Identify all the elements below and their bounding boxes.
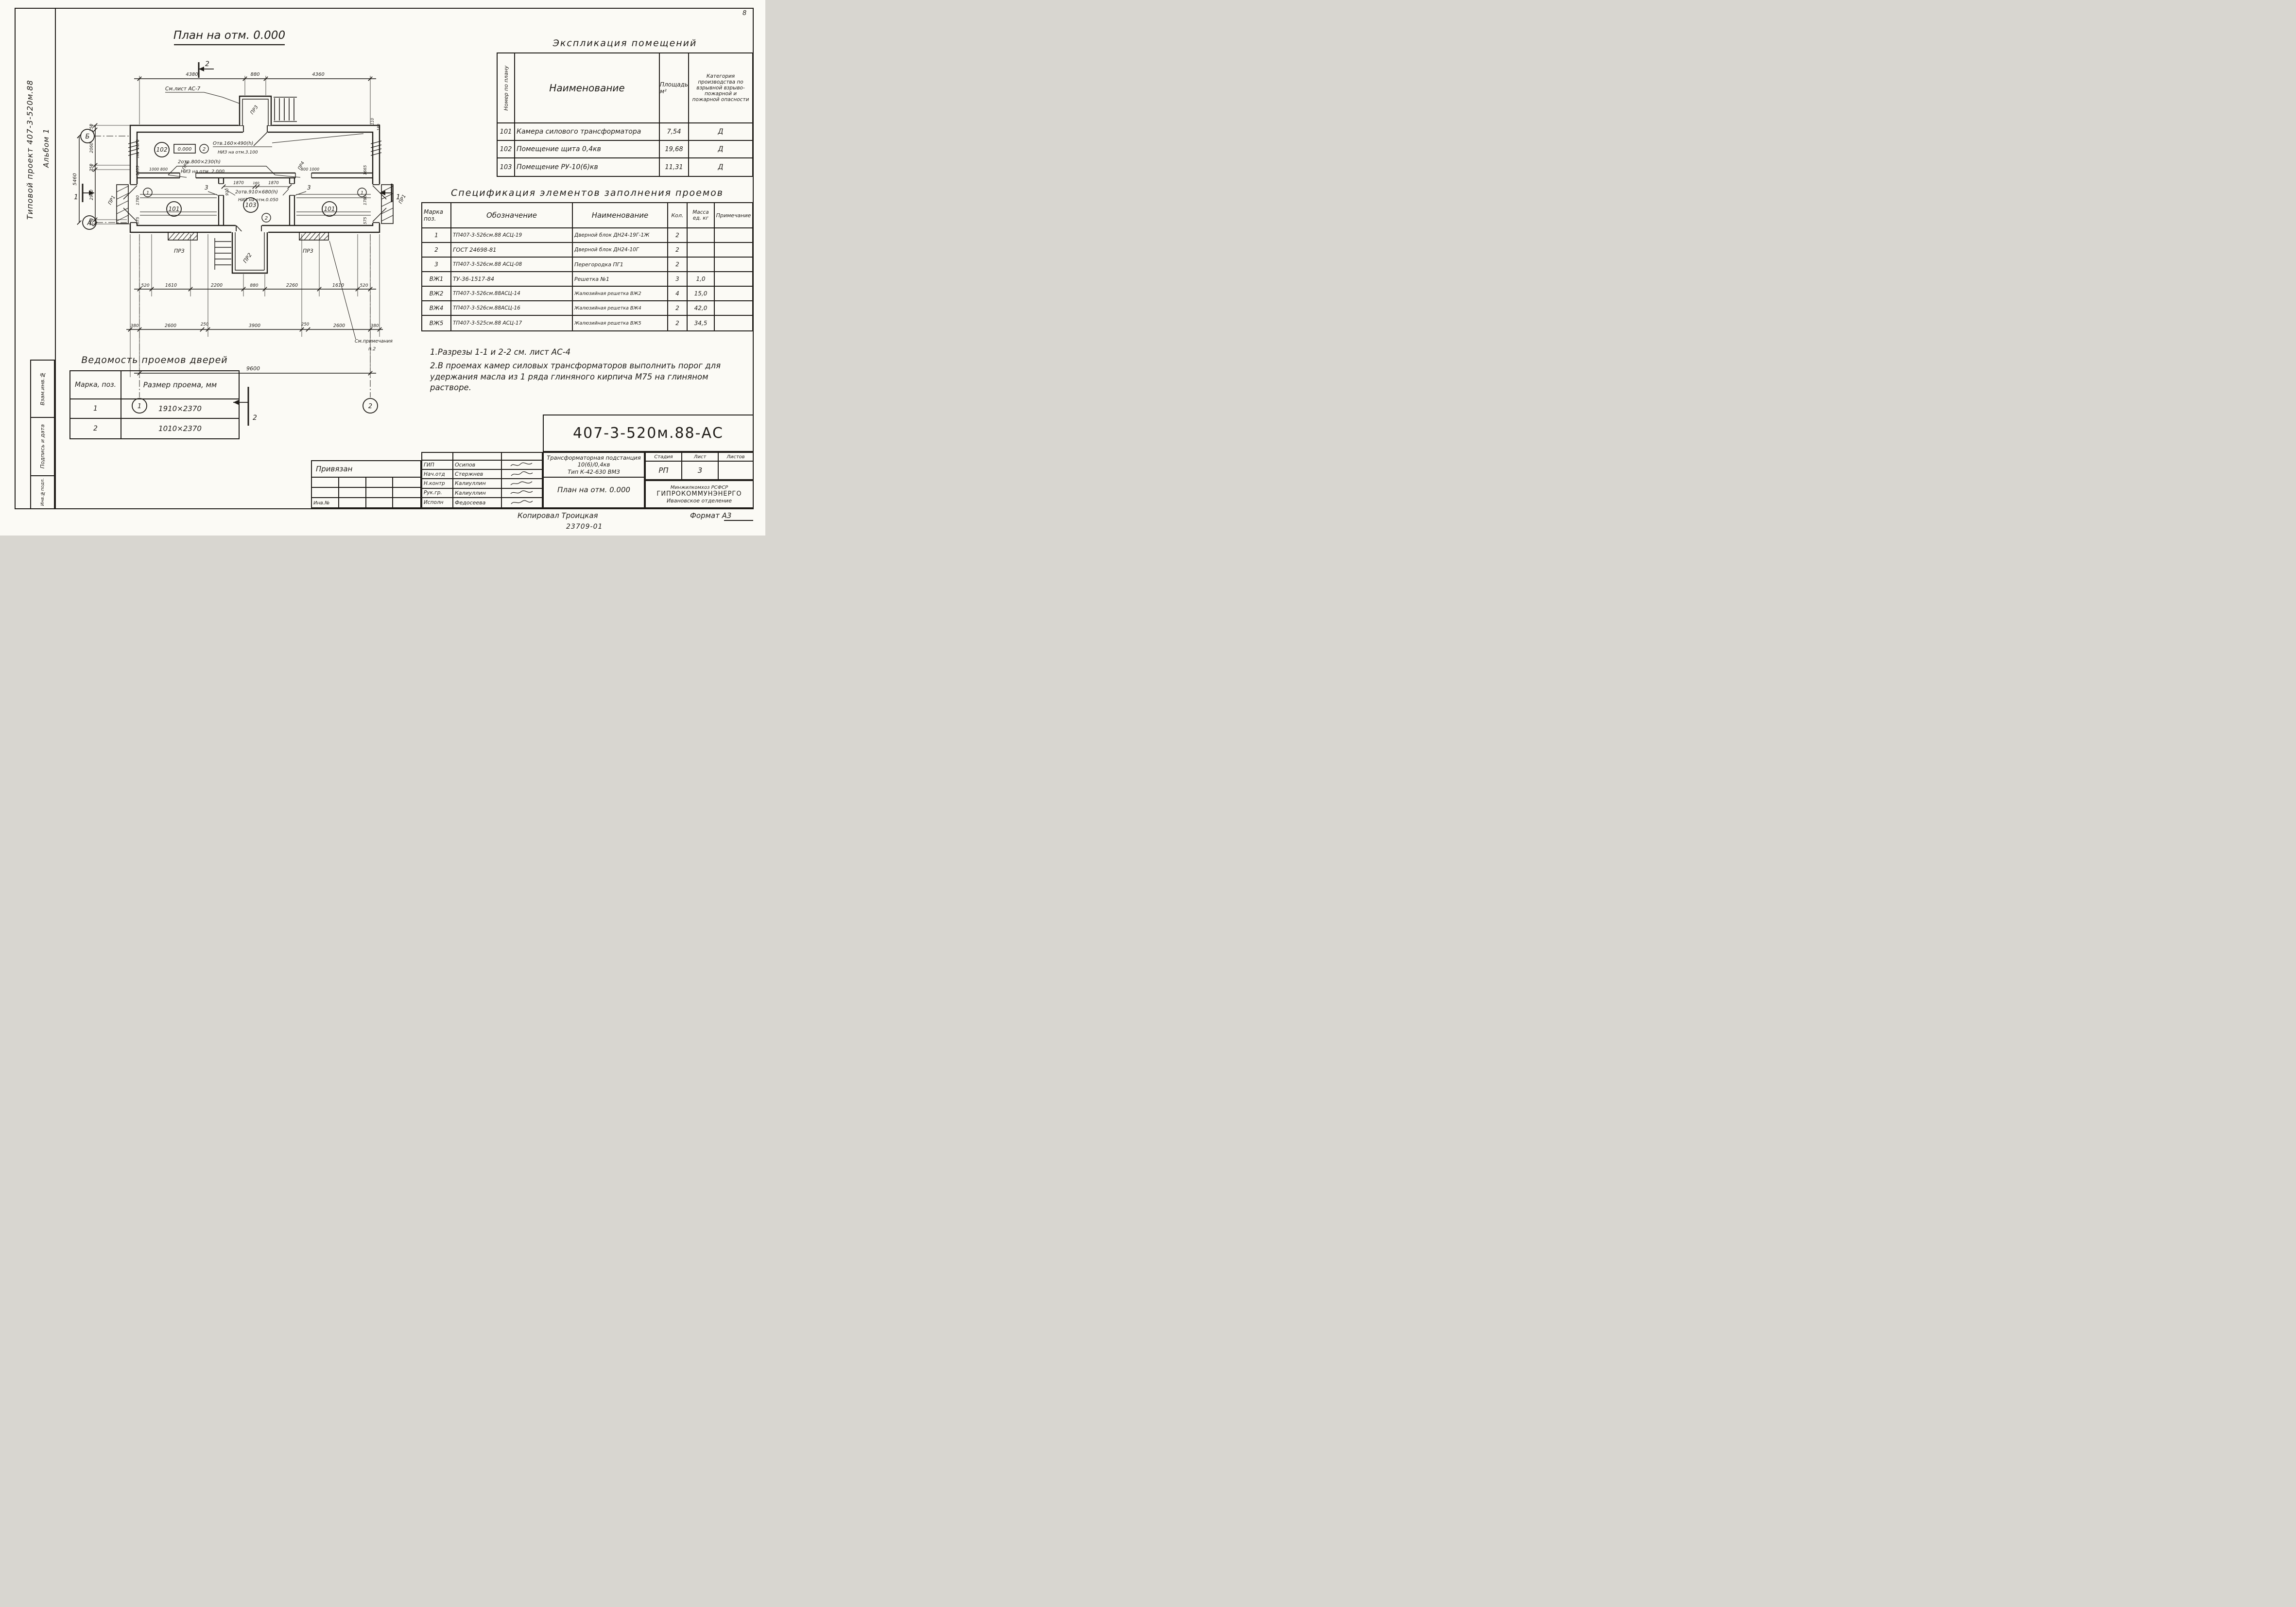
spec-cell: 2 — [668, 301, 688, 316]
doors-table: Марка, поз. Размер проема, мм 1 1910×237… — [69, 370, 240, 439]
dim-label: 180 — [377, 124, 381, 131]
dim-label: 3900 — [249, 323, 260, 328]
explication-cell: Д — [689, 141, 752, 158]
stamp-empty-cell — [393, 488, 420, 498]
stamp-object-line2: 10(6)/0,4кв — [544, 461, 644, 468]
dim-label: 1070 — [136, 139, 140, 149]
stamp-empty-cell — [502, 453, 542, 461]
spec-cell: 2 — [422, 243, 451, 258]
spec-cell: 1 — [422, 228, 451, 243]
explication-cell: Помещение РУ-10(6)кв — [515, 158, 660, 176]
dim-label: 1610 — [165, 283, 177, 288]
dim-label: 250 — [201, 322, 208, 327]
doors-cell: 1010×2370 — [121, 419, 239, 438]
frame-left — [55, 8, 56, 509]
spec-cell: 2 — [668, 316, 688, 330]
spec-cell — [688, 228, 715, 243]
frame-bottom — [15, 508, 754, 509]
stamp-stage-grid: Стадия Лист Листов РП 3 — [645, 452, 754, 480]
spec-header: Масса ед. кг — [688, 203, 715, 228]
explication-cell: Д — [689, 123, 752, 141]
spec-cell: ВЖ5 — [422, 316, 451, 330]
bottom-porch — [215, 231, 268, 274]
door-mark-1-left: 1 — [146, 190, 149, 196]
explication-cell: Помещение щита 0,4кв — [515, 141, 660, 158]
explication-cell: 7,54 — [660, 123, 689, 141]
stamp-stage-header: Лист — [682, 453, 719, 462]
spec-cell: 15,0 — [688, 287, 715, 301]
dim-label: 110 — [370, 118, 375, 125]
stamp-empty-cell — [339, 478, 366, 488]
spec-cell: ТП407-3-526см.88АСЦ-14 — [451, 287, 573, 301]
stamp-empty-cell — [422, 453, 453, 461]
dim-label: 880 — [250, 283, 258, 288]
spec-cell — [715, 243, 752, 258]
stamp-empty-cell — [393, 498, 420, 508]
paper-edge-line — [15, 8, 16, 509]
dim-label: 4360 — [312, 72, 324, 77]
stamp-empty-cell — [339, 488, 366, 498]
spec-header: Наименование — [573, 203, 668, 228]
dim-label: 800 1000 — [301, 167, 319, 172]
explication-cell: 19,68 — [660, 141, 689, 158]
stamp-object-line1: Трансформаторная подстанция — [544, 454, 644, 461]
spec-cell: Дверной блок ДН24-10Г — [573, 243, 668, 258]
spec-cell — [715, 301, 752, 316]
dim-label: 2200 — [211, 283, 223, 288]
section-2-top-label: 2 — [205, 60, 209, 68]
explication-table: Номер по плану Наименование Площадь м² К… — [497, 52, 753, 177]
explication-cell: 101 — [498, 123, 515, 141]
dim-label: 380 — [130, 324, 138, 328]
stamp-list-value: 3 — [682, 462, 719, 479]
signature-scribble — [502, 489, 542, 498]
explication-header-category: Категория производства по взрывной взрыв… — [689, 53, 752, 123]
spec-header: Марка поз. — [422, 203, 451, 228]
frame-top — [15, 8, 754, 9]
footer-rule — [724, 520, 753, 521]
dim-label: 1870 — [268, 181, 279, 186]
spec-cell — [715, 272, 752, 287]
plan-title: План на отм. 0.000 — [173, 29, 285, 42]
explication-cell: Камера силового трансформатора — [515, 123, 660, 141]
side-box-inv: Инв.№подл. — [30, 475, 55, 509]
spec-cell: Перегородка ПГ1 — [573, 258, 668, 272]
stamp-org-cell: Минжилкомхоз РСФСР ГИПРОКОММУНЭНЕРГО Ива… — [645, 480, 754, 508]
spec-cell: Дверной блок ДН24-19Г-1Ж — [573, 228, 668, 243]
dim-label: 380 — [370, 324, 379, 328]
spec-cell: ГОСТ 24698-81 — [451, 243, 573, 258]
stamp-object-cell: Трансформаторная подстанция 10(6)/0,4кв … — [543, 452, 645, 508]
note-2: 2.В проемах камер силовых трансформаторо… — [430, 361, 741, 393]
dim-label: 1780 — [136, 195, 140, 205]
explication-cell: 102 — [498, 141, 515, 158]
dim-label: 520 — [141, 283, 149, 288]
section-1-left-label: 1 — [74, 193, 78, 201]
explication-cell: 103 — [498, 158, 515, 176]
spec-cell — [715, 258, 752, 272]
axis-a: А — [87, 220, 92, 227]
dim-label: 1610 — [332, 283, 344, 288]
stamp-role: Рук.гр. — [422, 489, 453, 498]
door-mark-2-bottom: 2 — [265, 216, 268, 221]
doors-header-mark: Марка, поз. — [70, 371, 121, 399]
spec-cell: 2 — [668, 258, 688, 272]
spec-cell: 2 — [668, 243, 688, 258]
dim-label: 2600 — [333, 323, 345, 328]
stamp-name: Осипов — [453, 461, 502, 470]
side-project-text: Типовой проект 407-3-520м.88 — [25, 80, 35, 220]
signature-scribble — [502, 498, 542, 507]
dim-label: 2600 — [165, 323, 176, 328]
explication-cell: Д — [689, 158, 752, 176]
stamp-inv-label: Инв.№ — [312, 498, 339, 508]
dim-label: 1000 800 — [149, 167, 168, 172]
stamp-signature-grid: ГИП Осипов Нач.отд Стержнев Н.контр Кали… — [421, 452, 543, 508]
spec-cell: ТП407-3-526см.88 АСЦ-19 — [451, 228, 573, 243]
dim-label: 2260 — [286, 283, 298, 288]
explication-header-number: Номер по плану — [498, 53, 515, 123]
label-pr1-left: ПР1 — [107, 195, 117, 206]
partition-mark-right: 3 — [307, 184, 311, 191]
level-mark: 0.000 — [178, 147, 192, 152]
door-mark-2-top: 2 — [203, 147, 206, 152]
doors-cell: 2 — [70, 419, 121, 438]
spec-table: Марка поз. Обозначение Наименование Кол.… — [421, 202, 753, 331]
stamp-stage-header: Листов — [719, 453, 753, 462]
spec-cell — [715, 228, 752, 243]
stamp-empty-cell — [366, 488, 394, 498]
spec-cell: ТП407-3-526см.88АСЦ-16 — [451, 301, 573, 316]
stamp-stage-value: РП — [646, 462, 682, 479]
spec-cell — [688, 243, 715, 258]
stamp-org-line2: ГИПРОКОММУНЭНЕРГО — [646, 490, 753, 498]
axis-2: 2 — [368, 403, 372, 410]
door-mark-1-right: 1 — [361, 190, 363, 196]
spec-header: Кол. — [668, 203, 688, 228]
spec-header: Обозначение — [451, 203, 573, 228]
dim-label: 1870 — [233, 181, 244, 186]
spec-cell: 3 — [668, 272, 688, 287]
side-box-podpis: Подпись и дата — [30, 417, 55, 476]
spec-cell: ВЖ1 — [422, 272, 451, 287]
stamp-name: Стержнев — [453, 470, 502, 479]
dim-label: 1665 — [363, 165, 367, 175]
stamp-sheet-name: План на отм. 0.000 — [557, 485, 630, 494]
room-101-left: 101 — [169, 206, 180, 212]
footer-doc-code: 23709-01 — [566, 523, 603, 531]
dim-label: 575 — [363, 217, 367, 224]
dim-label: 2060 — [89, 142, 94, 153]
signature-scribble — [502, 461, 542, 470]
stamp-name: Федосеева — [453, 498, 502, 507]
ann-otv910-line1: 2отв.910×680(h) — [235, 190, 278, 195]
dim-label: 4380 — [186, 72, 198, 77]
spec-cell: ТП407-3-526см.88 АСЦ-08 — [451, 258, 573, 272]
explication-cell: 11,31 — [660, 158, 689, 176]
ann-otv160-line2: НИЗ на отм.3.100 — [218, 150, 258, 155]
spec-cell: ВЖ2 — [422, 287, 451, 301]
spec-cell: Жалюзийная решетка ВЖ5 — [573, 316, 668, 330]
stamp-role: Н.контр — [422, 479, 453, 488]
stamp-code-cell: 407-3-520м.88-АС — [543, 415, 754, 452]
label-pr3-bottom-left: ПР3 — [174, 248, 185, 254]
stamp-doc-code: 407-3-520м.88-АС — [573, 425, 724, 442]
spec-cell: ВЖ4 — [422, 301, 451, 316]
stamp-role: Исполн — [422, 498, 453, 507]
spec-cell: 42,0 — [688, 301, 715, 316]
stamp-role: Нач.отд — [422, 470, 453, 479]
side-box-vzam-label: Взам.инв.№ — [39, 372, 46, 405]
dim-label: 575 — [136, 217, 140, 224]
dim-label: 9600 — [246, 365, 260, 372]
dim-label: 250 — [301, 322, 309, 327]
section-2-bottom-label: 2 — [253, 414, 257, 422]
signature-scribble — [502, 479, 542, 488]
doors-cell: 1910×2370 — [121, 399, 239, 419]
footer-format: Формат А3 — [690, 511, 731, 520]
spec-cell: 3 — [422, 258, 451, 272]
spec-cell: 1,0 — [688, 272, 715, 287]
stamp-org-line1: Минжилкомхоз РСФСР — [646, 485, 753, 490]
label-pr3-bottom-right: ПР3 — [303, 248, 313, 254]
footer-copied-by: Копировал Троицкая — [518, 511, 598, 520]
dim-label: 880 — [250, 72, 259, 77]
note-1: 1.Разрезы 1-1 и 2-2 см. лист АС-4 — [430, 347, 741, 358]
axis-b: Б — [86, 133, 90, 140]
spec-cell — [688, 258, 715, 272]
stamp-empty-cell — [366, 478, 394, 488]
dim-label: 160 — [136, 152, 140, 158]
explication-title: Экспликация помещений — [497, 38, 753, 49]
doors-header-size: Размер проема, мм — [121, 371, 239, 399]
room-103: 103 — [245, 202, 257, 208]
spec-header: Примечание — [715, 203, 752, 228]
side-album-text: Альбом 1 — [42, 128, 51, 168]
stamp-name: Калиуллин — [453, 489, 502, 498]
doors-cell: 1 — [70, 399, 121, 419]
stamp-attach-block: Привязан Инв.№ — [311, 460, 421, 508]
spec-cell: 4 — [668, 287, 688, 301]
top-porch — [239, 95, 297, 125]
room-102: 102 — [156, 146, 168, 153]
spec-cell: Жалюзийная решетка ВЖ4 — [573, 301, 668, 316]
room-101-right: 101 — [324, 206, 335, 212]
see-sheet-note: См.лист АС-7 — [165, 86, 201, 92]
spec-cell: ТП407-3-525см.88 АСЦ-17 — [451, 316, 573, 330]
drawing-sheet: 8 Типовой проект 407-3-520м.88 Альбом 1 … — [0, 0, 765, 536]
explication-header-area: Площадь м² — [660, 53, 689, 123]
spec-cell: Жалюзийная решетка ВЖ2 — [573, 287, 668, 301]
partition-mark-left: 3 — [205, 184, 208, 191]
stamp-empty-cell — [366, 498, 394, 508]
dim-label: 250 — [89, 164, 94, 172]
dim-label: 1780 — [363, 195, 367, 205]
stamp-empty-cell — [312, 488, 339, 498]
ann-otv910-line2: НИЗ на отм.0.050 — [238, 198, 278, 203]
see-note-line1: См.примечания — [355, 339, 393, 344]
stamp-empty-cell — [393, 478, 420, 488]
spec-cell — [715, 287, 752, 301]
stamp-empty-cell — [312, 478, 339, 488]
building-walls — [130, 125, 380, 232]
section-1-right-label: 1 — [396, 193, 400, 201]
dim-label: 910 — [225, 188, 229, 195]
spec-cell: 34,5 — [688, 316, 715, 330]
doors-title: Ведомость проемов дверей — [69, 355, 240, 365]
spec-cell — [715, 316, 752, 330]
stamp-stage-header: Стадия — [646, 453, 682, 462]
side-box-vzam: Взам.инв.№ — [30, 360, 55, 418]
spec-title: Спецификация элементов заполнения проемо… — [421, 188, 753, 198]
stamp-attach-label: Привязан — [316, 465, 352, 473]
side-box-inv-label: Инв.№подл. — [40, 478, 45, 506]
corner-page-mark: 8 — [742, 10, 746, 17]
stamp-total-value — [719, 462, 753, 479]
dim-label: 520 — [360, 283, 368, 288]
stamp-name: Калиуллин — [453, 479, 502, 488]
notes-block: 1.Разрезы 1-1 и 2-2 см. лист АС-4 2.В пр… — [430, 347, 741, 396]
signature-scribble — [502, 470, 542, 479]
ann-otv160-line1: Отв.160×490(h) — [213, 141, 253, 146]
spec-cell: ТУ-36-1517-84 — [451, 272, 573, 287]
stamp-empty-cell — [339, 498, 366, 508]
dim-label: 5460 — [72, 173, 78, 185]
ann-otv800-line2: НИЗ на отм. 2.000 — [181, 169, 224, 174]
spec-cell: 2 — [668, 228, 688, 243]
spec-cell: Решетка №1 — [573, 272, 668, 287]
explication-header-name: Наименование — [515, 53, 660, 123]
side-box-podpis-label: Подпись и дата — [39, 424, 46, 468]
dim-label: 1655 — [136, 166, 140, 175]
stamp-object-line3: Тип К-42-630 ВМЗ — [544, 468, 644, 475]
stamp-empty-cell — [453, 453, 502, 461]
see-note-line2: п.2 — [368, 346, 376, 352]
stamp-role: ГИП — [422, 461, 453, 470]
stamp-org-line3: Ивановское отделение — [646, 498, 753, 504]
